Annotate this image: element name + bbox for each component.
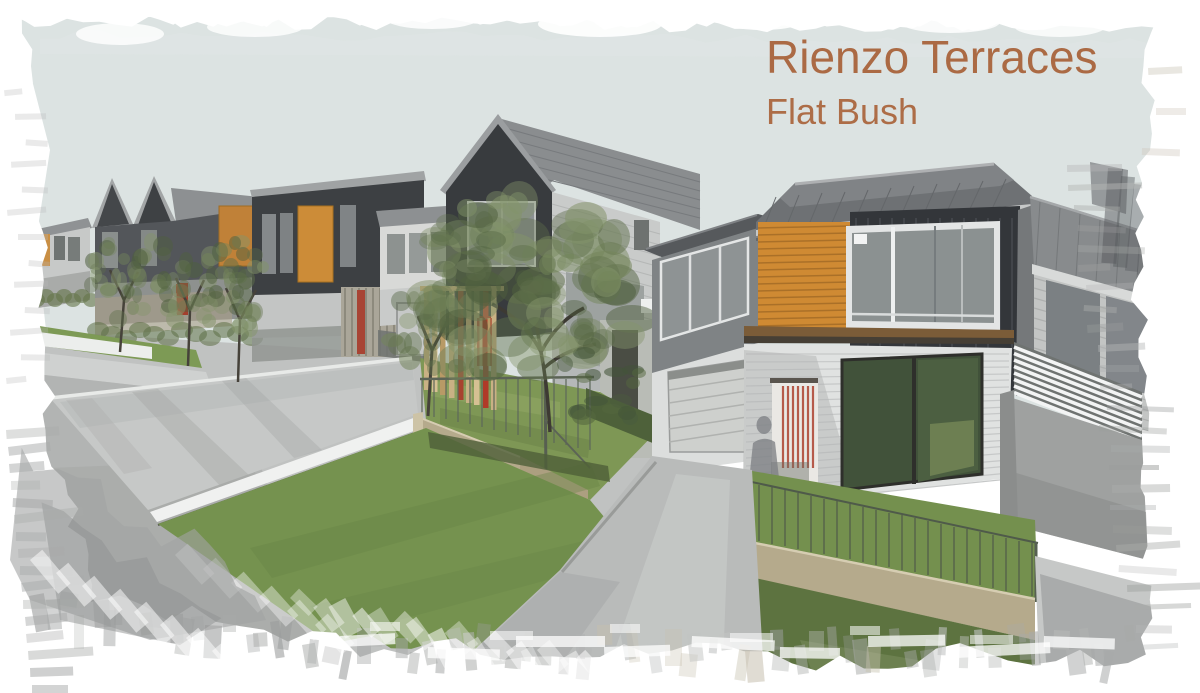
svg-text:Flat Bush: Flat Bush <box>766 91 918 132</box>
svg-text:Rienzo Terraces: Rienzo Terraces <box>766 31 1098 83</box>
